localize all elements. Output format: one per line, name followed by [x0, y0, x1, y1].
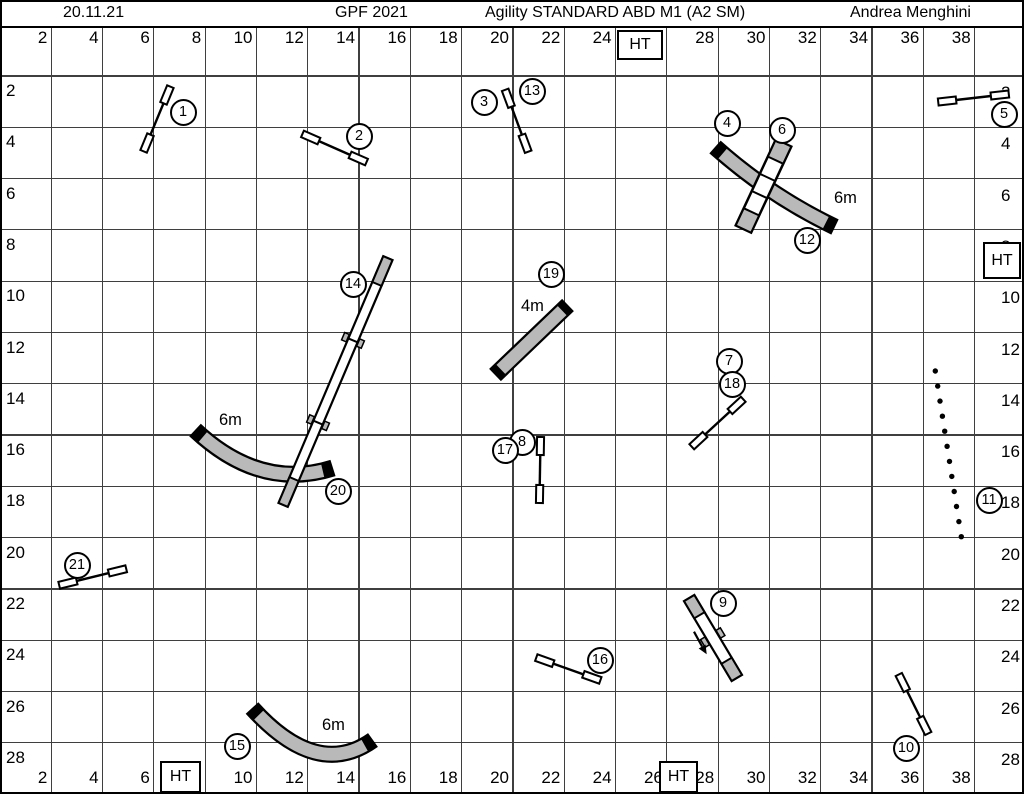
obstacle-number-circle: 14 — [340, 271, 367, 298]
obstacle-number-circle: 11 — [976, 487, 1003, 514]
obstacle-number-circle: 3 — [471, 89, 498, 116]
agility-course-map: 20.11.21 GPF 2021 Agility STANDARD ABD M… — [0, 0, 1024, 794]
obstacle-number-circle: 17 — [492, 437, 519, 464]
tunnel-length-label: 6m — [219, 411, 242, 430]
jump — [896, 673, 932, 735]
jump — [140, 85, 173, 152]
obstacles-layer — [0, 0, 1024, 794]
obstacle-number-circle: 1 — [170, 99, 197, 126]
weave-pole-dot — [952, 489, 957, 494]
ht-box-bottom-mid: HT — [659, 761, 698, 793]
a-frame — [736, 139, 792, 232]
ht-box-bottom-left: HT — [160, 761, 201, 793]
obstacle-number-circle: 20 — [325, 478, 352, 505]
obstacle-number-circle: 9 — [710, 590, 737, 617]
weave-pole-dot — [954, 504, 959, 509]
obstacle-number-circle: 19 — [538, 261, 565, 288]
weave-pole-dot — [933, 368, 938, 373]
obstacle-number-circle: 12 — [794, 227, 821, 254]
weave-pole-dot — [942, 429, 947, 434]
weave-pole-dot — [940, 414, 945, 419]
weave-pole-dot — [956, 519, 961, 524]
weave-pole-dot — [947, 459, 952, 464]
pipe-tunnel-15 — [252, 708, 373, 754]
weave-pole-dot — [949, 474, 954, 479]
obstacle-number-circle: 6 — [769, 117, 796, 144]
obstacle-number-circle: 5 — [991, 101, 1018, 128]
weave-pole-dot — [937, 398, 942, 403]
tunnel-length-label: 4m — [521, 297, 544, 316]
obstacle-number-circle: 15 — [224, 733, 251, 760]
tunnel-length-label: 6m — [834, 189, 857, 208]
tunnel-length-label: 6m — [322, 716, 345, 735]
weave-pole-dot — [959, 534, 964, 539]
jump — [689, 397, 745, 450]
dog-walk — [273, 254, 397, 509]
obstacle-number-circle: 10 — [893, 735, 920, 762]
weave-pole-dot — [935, 383, 940, 388]
weave-poles — [933, 368, 964, 539]
jump — [536, 437, 544, 503]
obstacle-number-circle: 13 — [519, 78, 546, 105]
ht-box-right: HT — [983, 242, 1021, 279]
obstacle-number-circle: 2 — [346, 123, 373, 150]
obstacle-number-circle: 21 — [64, 552, 91, 579]
obstacle-number-circle: 18 — [719, 371, 746, 398]
obstacle-number-circle: 16 — [587, 647, 614, 674]
ht-box-top: HT — [617, 30, 663, 60]
weave-pole-dot — [944, 444, 949, 449]
obstacle-number-circle: 4 — [714, 110, 741, 137]
